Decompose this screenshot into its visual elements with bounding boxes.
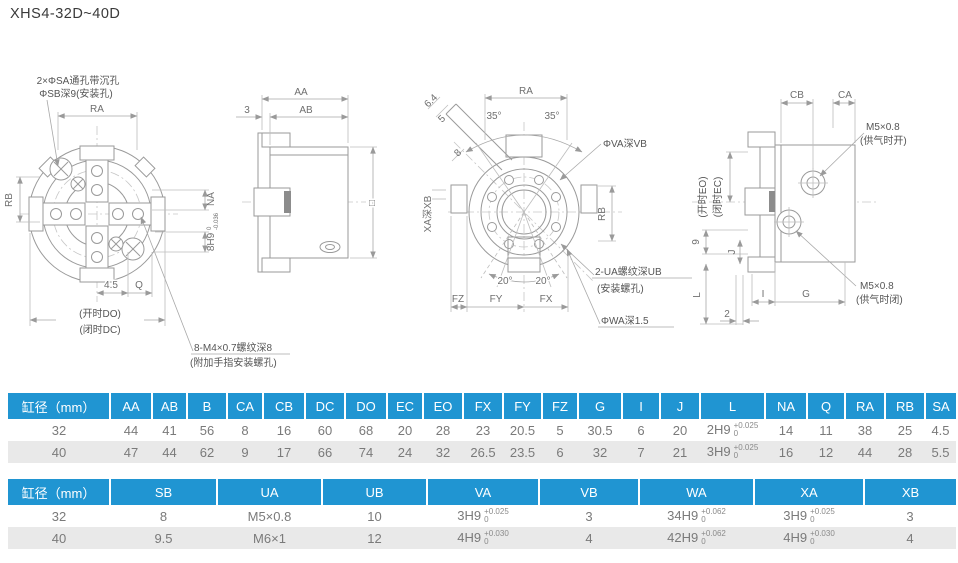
- table-cell: 32: [8, 505, 110, 527]
- dim-square-label: □: [367, 200, 378, 206]
- svg-text:-0.036: -0.036: [214, 212, 220, 230]
- column-header: AB: [152, 393, 187, 419]
- table-cell: 26.5: [463, 441, 503, 463]
- table-cell: 40: [8, 441, 110, 463]
- table-cell: 4.5: [925, 419, 956, 441]
- table-row: 32444156816606820282320.5530.56202H9+0.0…: [8, 419, 956, 441]
- table-cell: 60: [305, 419, 345, 441]
- column-header: SB: [110, 479, 217, 505]
- column-header: SA: [925, 393, 956, 419]
- column-header: UA: [217, 479, 322, 505]
- table-cell: 11: [807, 419, 845, 441]
- column-header: Q: [807, 393, 845, 419]
- table-cell: 74: [345, 441, 387, 463]
- dim-l-label: L: [692, 292, 703, 298]
- table-cell: 17: [263, 441, 305, 463]
- table-cell: 4H9+0.0300: [754, 527, 864, 549]
- column-header: J: [660, 393, 700, 419]
- m5-open-callout-line2: (供气时开): [860, 134, 907, 147]
- m5-close-callout-line2: (供气时闭): [856, 293, 903, 306]
- table-cell: 3H9+0.0250: [754, 505, 864, 527]
- table-cell: 42H9+0.0620: [639, 527, 754, 549]
- column-header: XB: [864, 479, 956, 505]
- table-cell: 4: [539, 527, 639, 549]
- dim-xa-xb-label: XA深XB: [422, 195, 434, 232]
- mount-hole-callout-line1: 2×ΦSA通孔带沉孔: [37, 74, 120, 87]
- dim-2-label: 2: [724, 309, 730, 320]
- table-cell: 44: [845, 441, 885, 463]
- column-header: RB: [885, 393, 925, 419]
- table-cell: 6: [622, 419, 660, 441]
- ua-thread-callout-line2: (安装螺孔): [597, 282, 644, 295]
- finger-thread-callout-line2: (附加手指安装螺孔): [190, 356, 277, 369]
- table-cell: 10: [322, 505, 427, 527]
- svg-text:8H9: 8H9: [206, 232, 217, 251]
- table-row: 328M5×0.8103H9+0.0250334H9+0.06203H9+0.0…: [8, 505, 956, 527]
- dim-aa-label: AA: [294, 87, 308, 98]
- table-cell: 5.5: [925, 441, 956, 463]
- column-header: XA: [754, 479, 864, 505]
- angle-35-left-label: 35°: [486, 111, 501, 122]
- column-header: CA: [227, 393, 263, 419]
- dim-fy-label: FY: [490, 294, 503, 305]
- table-cell: 32: [8, 419, 110, 441]
- dim-ra2-label: RA: [519, 86, 533, 97]
- dim-fx-label: FX: [540, 294, 553, 305]
- table-cell: 34H9+0.0620: [639, 505, 754, 527]
- table-cell: 32: [423, 441, 463, 463]
- dim-fz-label: FZ: [452, 294, 464, 305]
- table-cell: 23: [463, 419, 503, 441]
- ua-thread-callout-line1: 2-UA螺纹深UB: [595, 265, 662, 278]
- table-cell: 62: [187, 441, 227, 463]
- table-cell: 30.5: [578, 419, 622, 441]
- column-header: FZ: [542, 393, 578, 419]
- column-header: G: [578, 393, 622, 419]
- column-header: 缸径（mm）: [8, 479, 110, 505]
- side-view-drawing: AA AB 3 □: [236, 87, 378, 272]
- m5-open-callout-line1: M5×0.8: [866, 122, 900, 133]
- table-cell: 3: [864, 505, 956, 527]
- table-cell: 4H9+0.0300: [427, 527, 539, 549]
- rear-view-drawing: 6.4 5 8 RA 35° 35° XA深XB ΦVA深VB RB: [422, 86, 692, 327]
- front-view-drawing: RA 2×ΦSA通孔带沉孔 ΦSB深9(安装孔) RB NA 8H9 0 -0.…: [4, 74, 290, 369]
- table-cell: 8: [110, 505, 217, 527]
- table-cell: 40: [8, 527, 110, 549]
- table-cell: 23.5: [503, 441, 542, 463]
- table-cell: 3: [539, 505, 639, 527]
- table-cell: 20: [387, 419, 423, 441]
- table-cell: 20: [660, 419, 700, 441]
- dim-eo-label: (开时EO): [697, 176, 709, 217]
- table-cell: M5×0.8: [217, 505, 322, 527]
- datasheet-page: XHS4-32D~40D: [0, 0, 958, 563]
- dim-ec-label: (闭时EC): [711, 177, 724, 218]
- dim-ca-label: CA: [838, 90, 852, 101]
- dim-i-label: I: [762, 289, 765, 300]
- table-cell: 24: [387, 441, 423, 463]
- column-header: WA: [639, 479, 754, 505]
- table-row: 409.5M6×1124H9+0.0300442H9+0.06204H9+0.0…: [8, 527, 956, 549]
- column-header: NA: [765, 393, 807, 419]
- angle-20-right-label: 20°: [535, 276, 550, 287]
- column-header: VB: [539, 479, 639, 505]
- table-cell: 56: [187, 419, 227, 441]
- column-header: UB: [322, 479, 427, 505]
- column-header: CB: [263, 393, 305, 419]
- column-header: AA: [110, 393, 152, 419]
- table-cell: 4: [864, 527, 956, 549]
- dim-6-4-label: 6.4: [422, 92, 440, 110]
- finger-thread-callout-line1: 8-M4×0.7螺纹深8: [194, 341, 273, 354]
- port-view-drawing: CB CA M5×0.8 (供气时开) M5×0.8 (供气时闭) (开时EO)…: [691, 90, 907, 325]
- table-cell: 44: [152, 441, 187, 463]
- dim-closed-dc-label: (闭时DC): [79, 323, 120, 336]
- table-cell: 38: [845, 419, 885, 441]
- column-header: L: [700, 393, 765, 419]
- table-cell: 21: [660, 441, 700, 463]
- table-cell: 6: [542, 441, 578, 463]
- dim-open-do-label: (开时DO): [79, 308, 121, 320]
- table-cell: 32: [578, 441, 622, 463]
- table-cell: 9: [227, 441, 263, 463]
- table-cell: 3H9+0.0250: [700, 441, 765, 463]
- dim-3-label: 3: [244, 105, 250, 116]
- table-cell: 28: [423, 419, 463, 441]
- angle-20-left-label: 20°: [497, 276, 512, 287]
- dim-9-label: 9: [691, 239, 702, 245]
- table-cell: 3H9+0.0250: [427, 505, 539, 527]
- table-cell: 16: [765, 441, 807, 463]
- dim-rb2-label: RB: [597, 207, 608, 221]
- table-cell: 66: [305, 441, 345, 463]
- table-cell: 28: [885, 441, 925, 463]
- table-cell: 20.5: [503, 419, 542, 441]
- dim-ra-label: RA: [90, 104, 104, 115]
- column-header: DC: [305, 393, 345, 419]
- column-header: EC: [387, 393, 423, 419]
- wa-hole-callout: ΦWA深1.5: [601, 315, 649, 327]
- table-cell: 8: [227, 419, 263, 441]
- dim-g-label: G: [802, 289, 810, 300]
- dimension-table-2: 缸径（mm）SBUAUBVAVBWAXAXB328M5×0.8103H9+0.0…: [8, 479, 956, 549]
- va-hole-callout: ΦVA深VB: [603, 138, 647, 150]
- mount-hole-callout-line2: ΦSB深9(安装孔): [39, 87, 113, 100]
- table-cell: 47: [110, 441, 152, 463]
- table-cell: 44: [110, 419, 152, 441]
- dim-q-label: Q: [135, 280, 143, 291]
- dim-na-label: NA: [206, 192, 217, 206]
- dim-4-5-label: 4.5: [104, 280, 118, 291]
- table-cell: 16: [263, 419, 305, 441]
- table-cell: 14: [765, 419, 807, 441]
- dim-j-label: J: [727, 250, 738, 255]
- column-header: DO: [345, 393, 387, 419]
- table-cell: 5: [542, 419, 578, 441]
- svg-text:0: 0: [207, 226, 213, 230]
- dim-ab-label: AB: [299, 105, 313, 116]
- table-cell: 41: [152, 419, 187, 441]
- column-header: FY: [503, 393, 542, 419]
- table-cell: 25: [885, 419, 925, 441]
- table-cell: 12: [322, 527, 427, 549]
- table-cell: 2H9+0.0250: [700, 419, 765, 441]
- column-header: EO: [423, 393, 463, 419]
- table-row: 404744629176674243226.523.56327213H9+0.0…: [8, 441, 956, 463]
- column-header: VA: [427, 479, 539, 505]
- table-cell: 12: [807, 441, 845, 463]
- column-header: B: [187, 393, 227, 419]
- column-header: FX: [463, 393, 503, 419]
- column-header: I: [622, 393, 660, 419]
- dim-rb-label: RB: [4, 193, 15, 207]
- column-header: 缸径（mm）: [8, 393, 110, 419]
- table-cell: 68: [345, 419, 387, 441]
- dimension-table-1: 缸径（mm）AAABBCACBDCDOECEOFXFYFZGIJLNAQRARB…: [8, 393, 956, 463]
- angle-35-right-label: 35°: [544, 111, 559, 122]
- technical-drawings: RA 2×ΦSA通孔带沉孔 ΦSB深9(安装孔) RB NA 8H9 0 -0.…: [0, 0, 958, 392]
- table-cell: 9.5: [110, 527, 217, 549]
- table-cell: 7: [622, 441, 660, 463]
- table-cell: M6×1: [217, 527, 322, 549]
- column-header: RA: [845, 393, 885, 419]
- dim-8-label: 8: [452, 147, 464, 159]
- m5-close-callout-line1: M5×0.8: [860, 281, 894, 292]
- dim-cb-label: CB: [790, 90, 804, 101]
